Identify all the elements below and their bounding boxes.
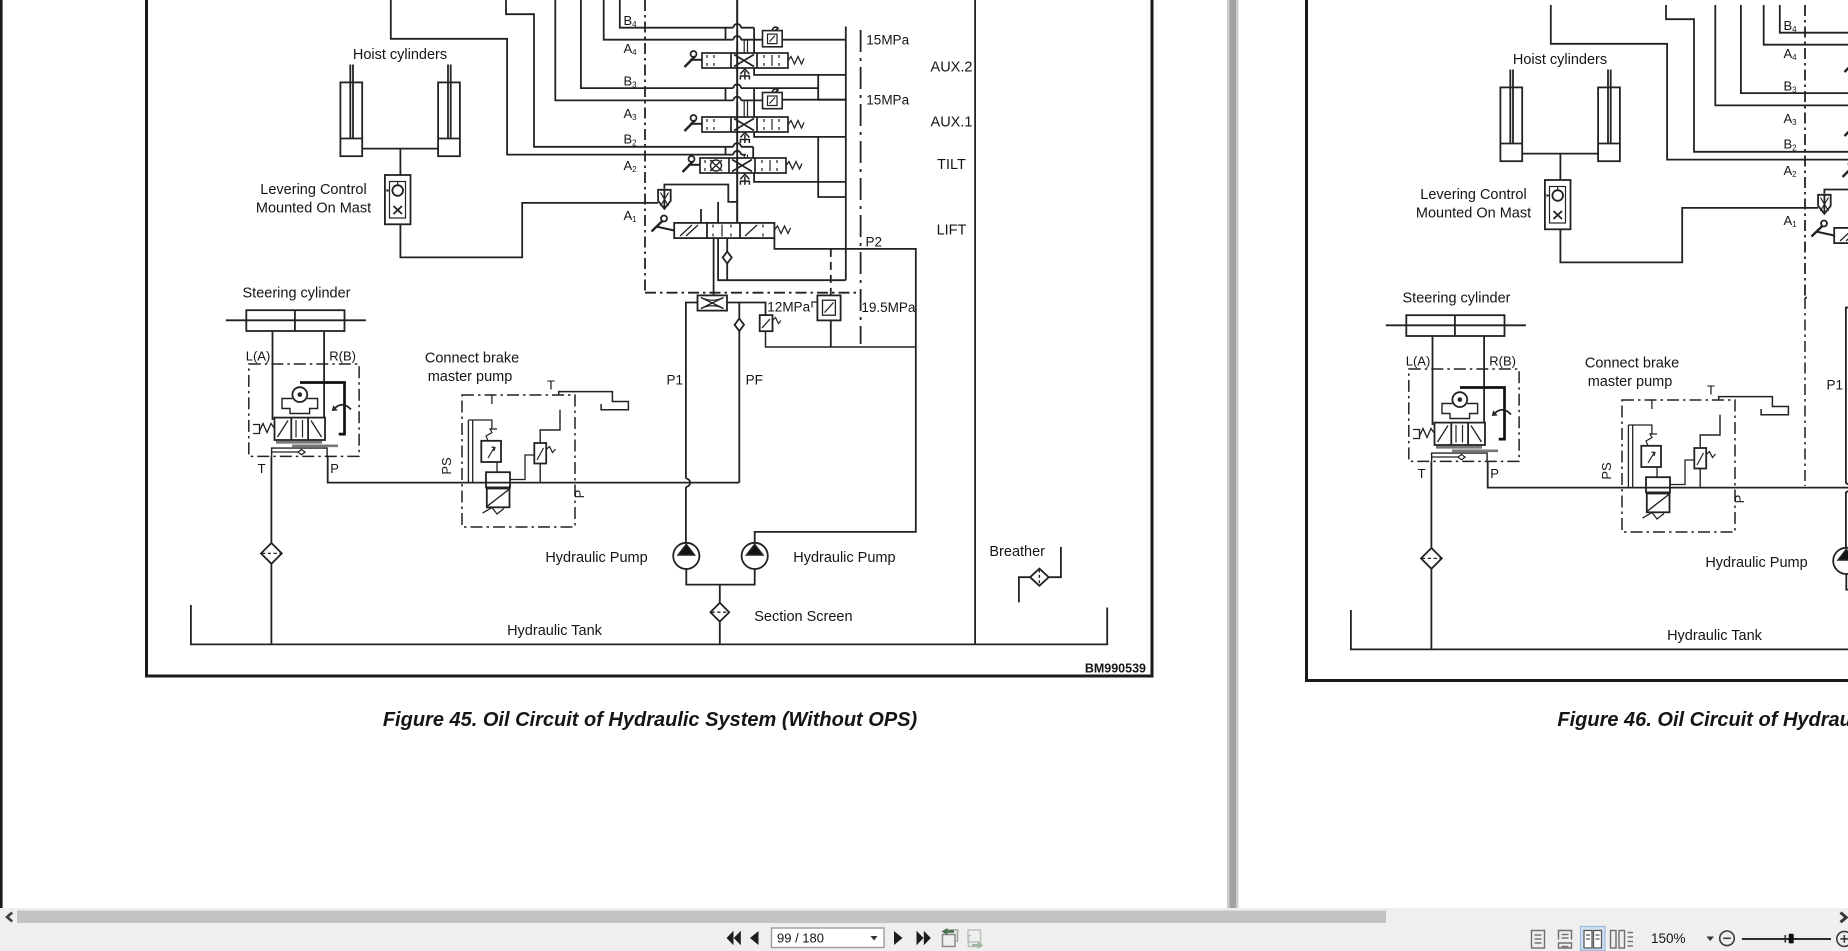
svg-text:Hydraulic Pump: Hydraulic Pump <box>545 550 647 566</box>
svg-text:master pump: master pump <box>428 369 513 385</box>
svg-text:A1: A1 <box>623 208 637 224</box>
svg-text:Breather: Breather <box>989 544 1045 560</box>
svg-text:PF: PF <box>746 373 763 388</box>
svg-text:TILT: TILT <box>937 157 966 173</box>
svg-text:L(A): L(A) <box>246 349 271 364</box>
svg-text:A2: A2 <box>623 158 637 174</box>
svg-text:R(B): R(B) <box>329 349 356 364</box>
svg-text:BM990539: BM990539 <box>1085 662 1146 676</box>
svg-text:Figure 46. Oil Circuit of Hydr: Figure 46. Oil Circuit of Hydraulic Syst… <box>1557 709 1848 731</box>
svg-text:15MPa: 15MPa <box>866 93 909 108</box>
svg-text:99 / 180: 99 / 180 <box>777 931 824 946</box>
svg-text:15MPa: 15MPa <box>866 33 909 48</box>
svg-text:AUX.2: AUX.2 <box>931 60 973 76</box>
svg-text:150%: 150% <box>1651 931 1686 946</box>
svg-text:Hoist cylinders: Hoist cylinders <box>353 47 447 63</box>
svg-text:A3: A3 <box>623 106 637 122</box>
svg-text:AUX.1: AUX.1 <box>931 115 973 131</box>
svg-text:LIFT: LIFT <box>937 223 967 239</box>
svg-text:Figure 45. Oil Circuit of Hydr: Figure 45. Oil Circuit of Hydraulic Syst… <box>383 709 918 731</box>
svg-text:B2: B2 <box>623 132 637 148</box>
svg-text:P: P <box>330 461 339 476</box>
svg-text:Levering Control: Levering Control <box>260 182 366 198</box>
svg-text:12MPa: 12MPa <box>767 300 810 315</box>
svg-text:Hydraulic Pump: Hydraulic Pump <box>793 550 895 566</box>
svg-text:A4: A4 <box>623 41 637 57</box>
svg-text:19.5MPa: 19.5MPa <box>861 300 916 315</box>
svg-text:P2: P2 <box>865 235 882 250</box>
svg-text:B3: B3 <box>623 74 637 90</box>
svg-text:P: P <box>572 490 587 499</box>
svg-text:P1: P1 <box>667 373 684 388</box>
svg-text:Connect brake: Connect brake <box>425 351 519 367</box>
svg-text:Section Screen: Section Screen <box>754 609 852 625</box>
svg-text:B4: B4 <box>623 13 637 29</box>
svg-text:Mounted On Mast: Mounted On Mast <box>256 201 371 217</box>
svg-text:Steering cylinder: Steering cylinder <box>243 286 351 302</box>
svg-text:PS: PS <box>439 457 454 475</box>
svg-text:Hydraulic Tank: Hydraulic Tank <box>507 623 603 639</box>
svg-text:T: T <box>258 461 266 476</box>
svg-text:T: T <box>547 378 555 393</box>
